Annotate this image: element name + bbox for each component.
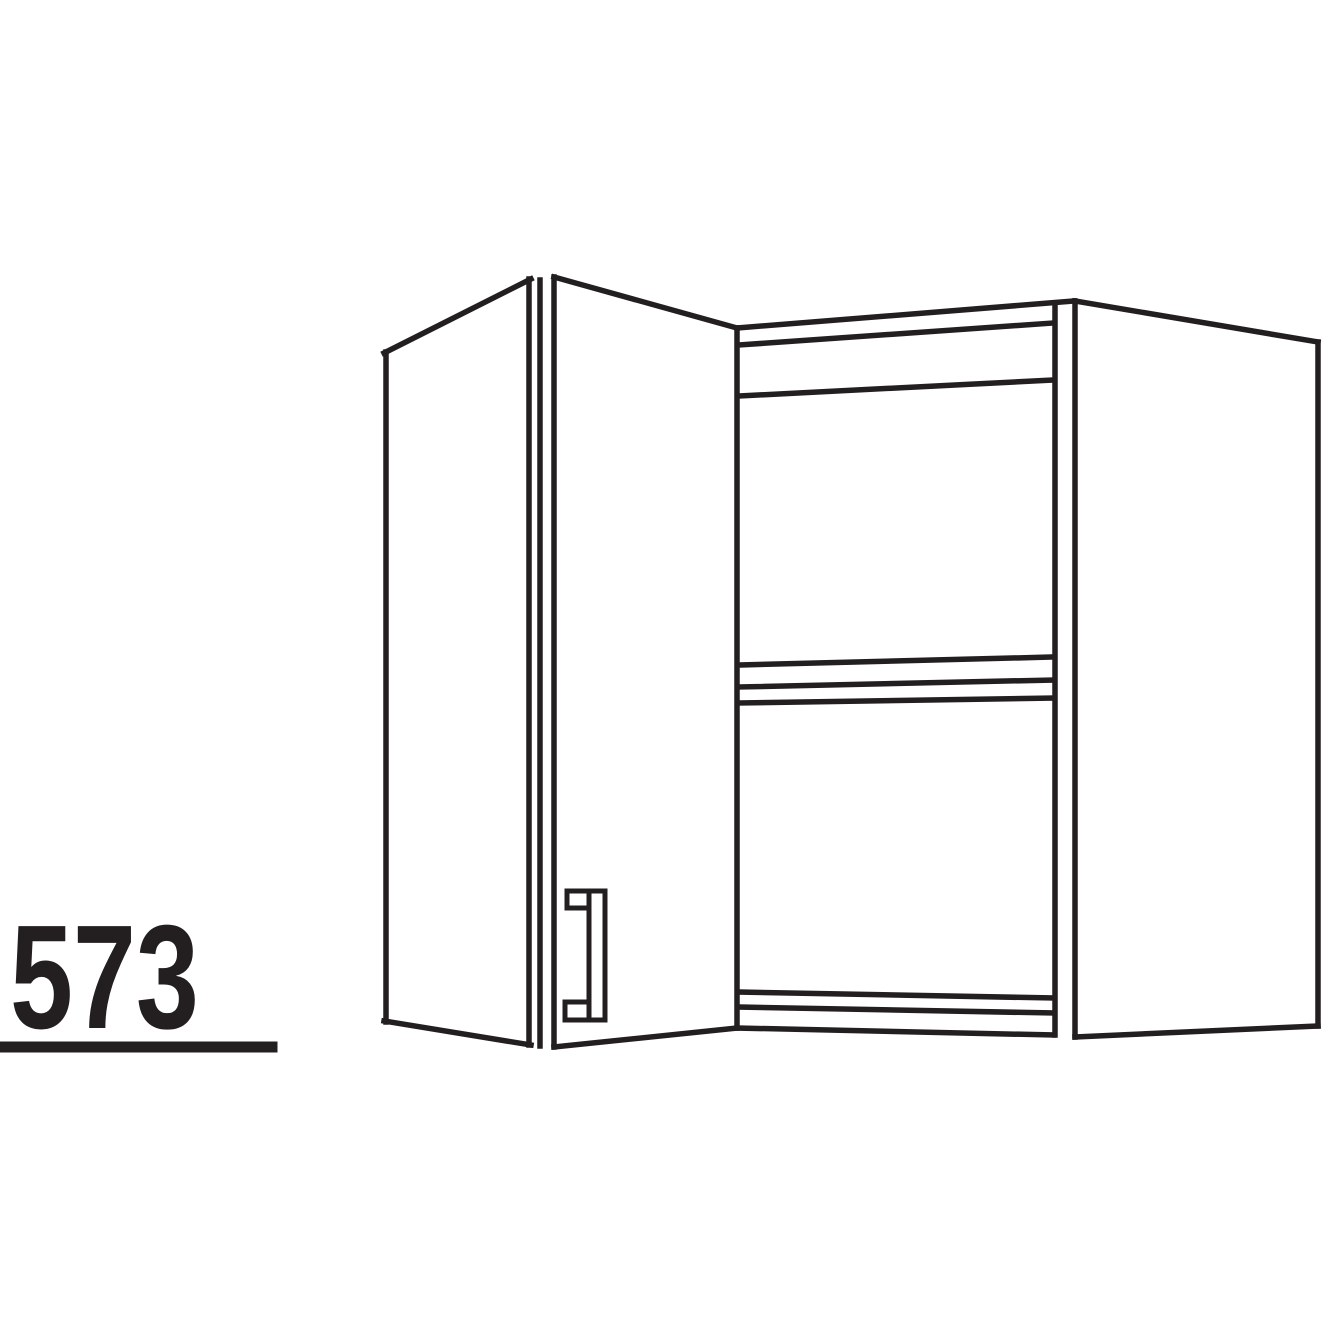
bottom-panel-front-edge	[739, 1007, 1053, 1013]
figure-label: 573	[10, 894, 199, 1059]
corner-top-edge	[554, 277, 737, 328]
corner-bottom-edge	[554, 1028, 737, 1047]
cabinet-drawing: 573	[0, 0, 1328, 1328]
top-panel-underside-edge	[739, 380, 1053, 396]
door-handle	[565, 891, 605, 1020]
handle-bar	[589, 891, 605, 1020]
illustration-canvas: 573	[0, 0, 1328, 1328]
opening-bottom-edge	[737, 1028, 1053, 1035]
cabinet-outline-group	[5, 277, 1318, 1047]
bottom-panel-top-edge	[739, 992, 1053, 998]
side-panel-bottom-edge	[1075, 1026, 1318, 1037]
door-top-edge	[384, 279, 531, 353]
shelf-top-edge	[739, 657, 1053, 665]
shelf-front-edge	[739, 680, 1053, 687]
door-bottom-edge	[384, 1021, 531, 1045]
shelf-bottom-edge	[739, 698, 1053, 703]
side-panel-top-edge	[1075, 301, 1318, 342]
